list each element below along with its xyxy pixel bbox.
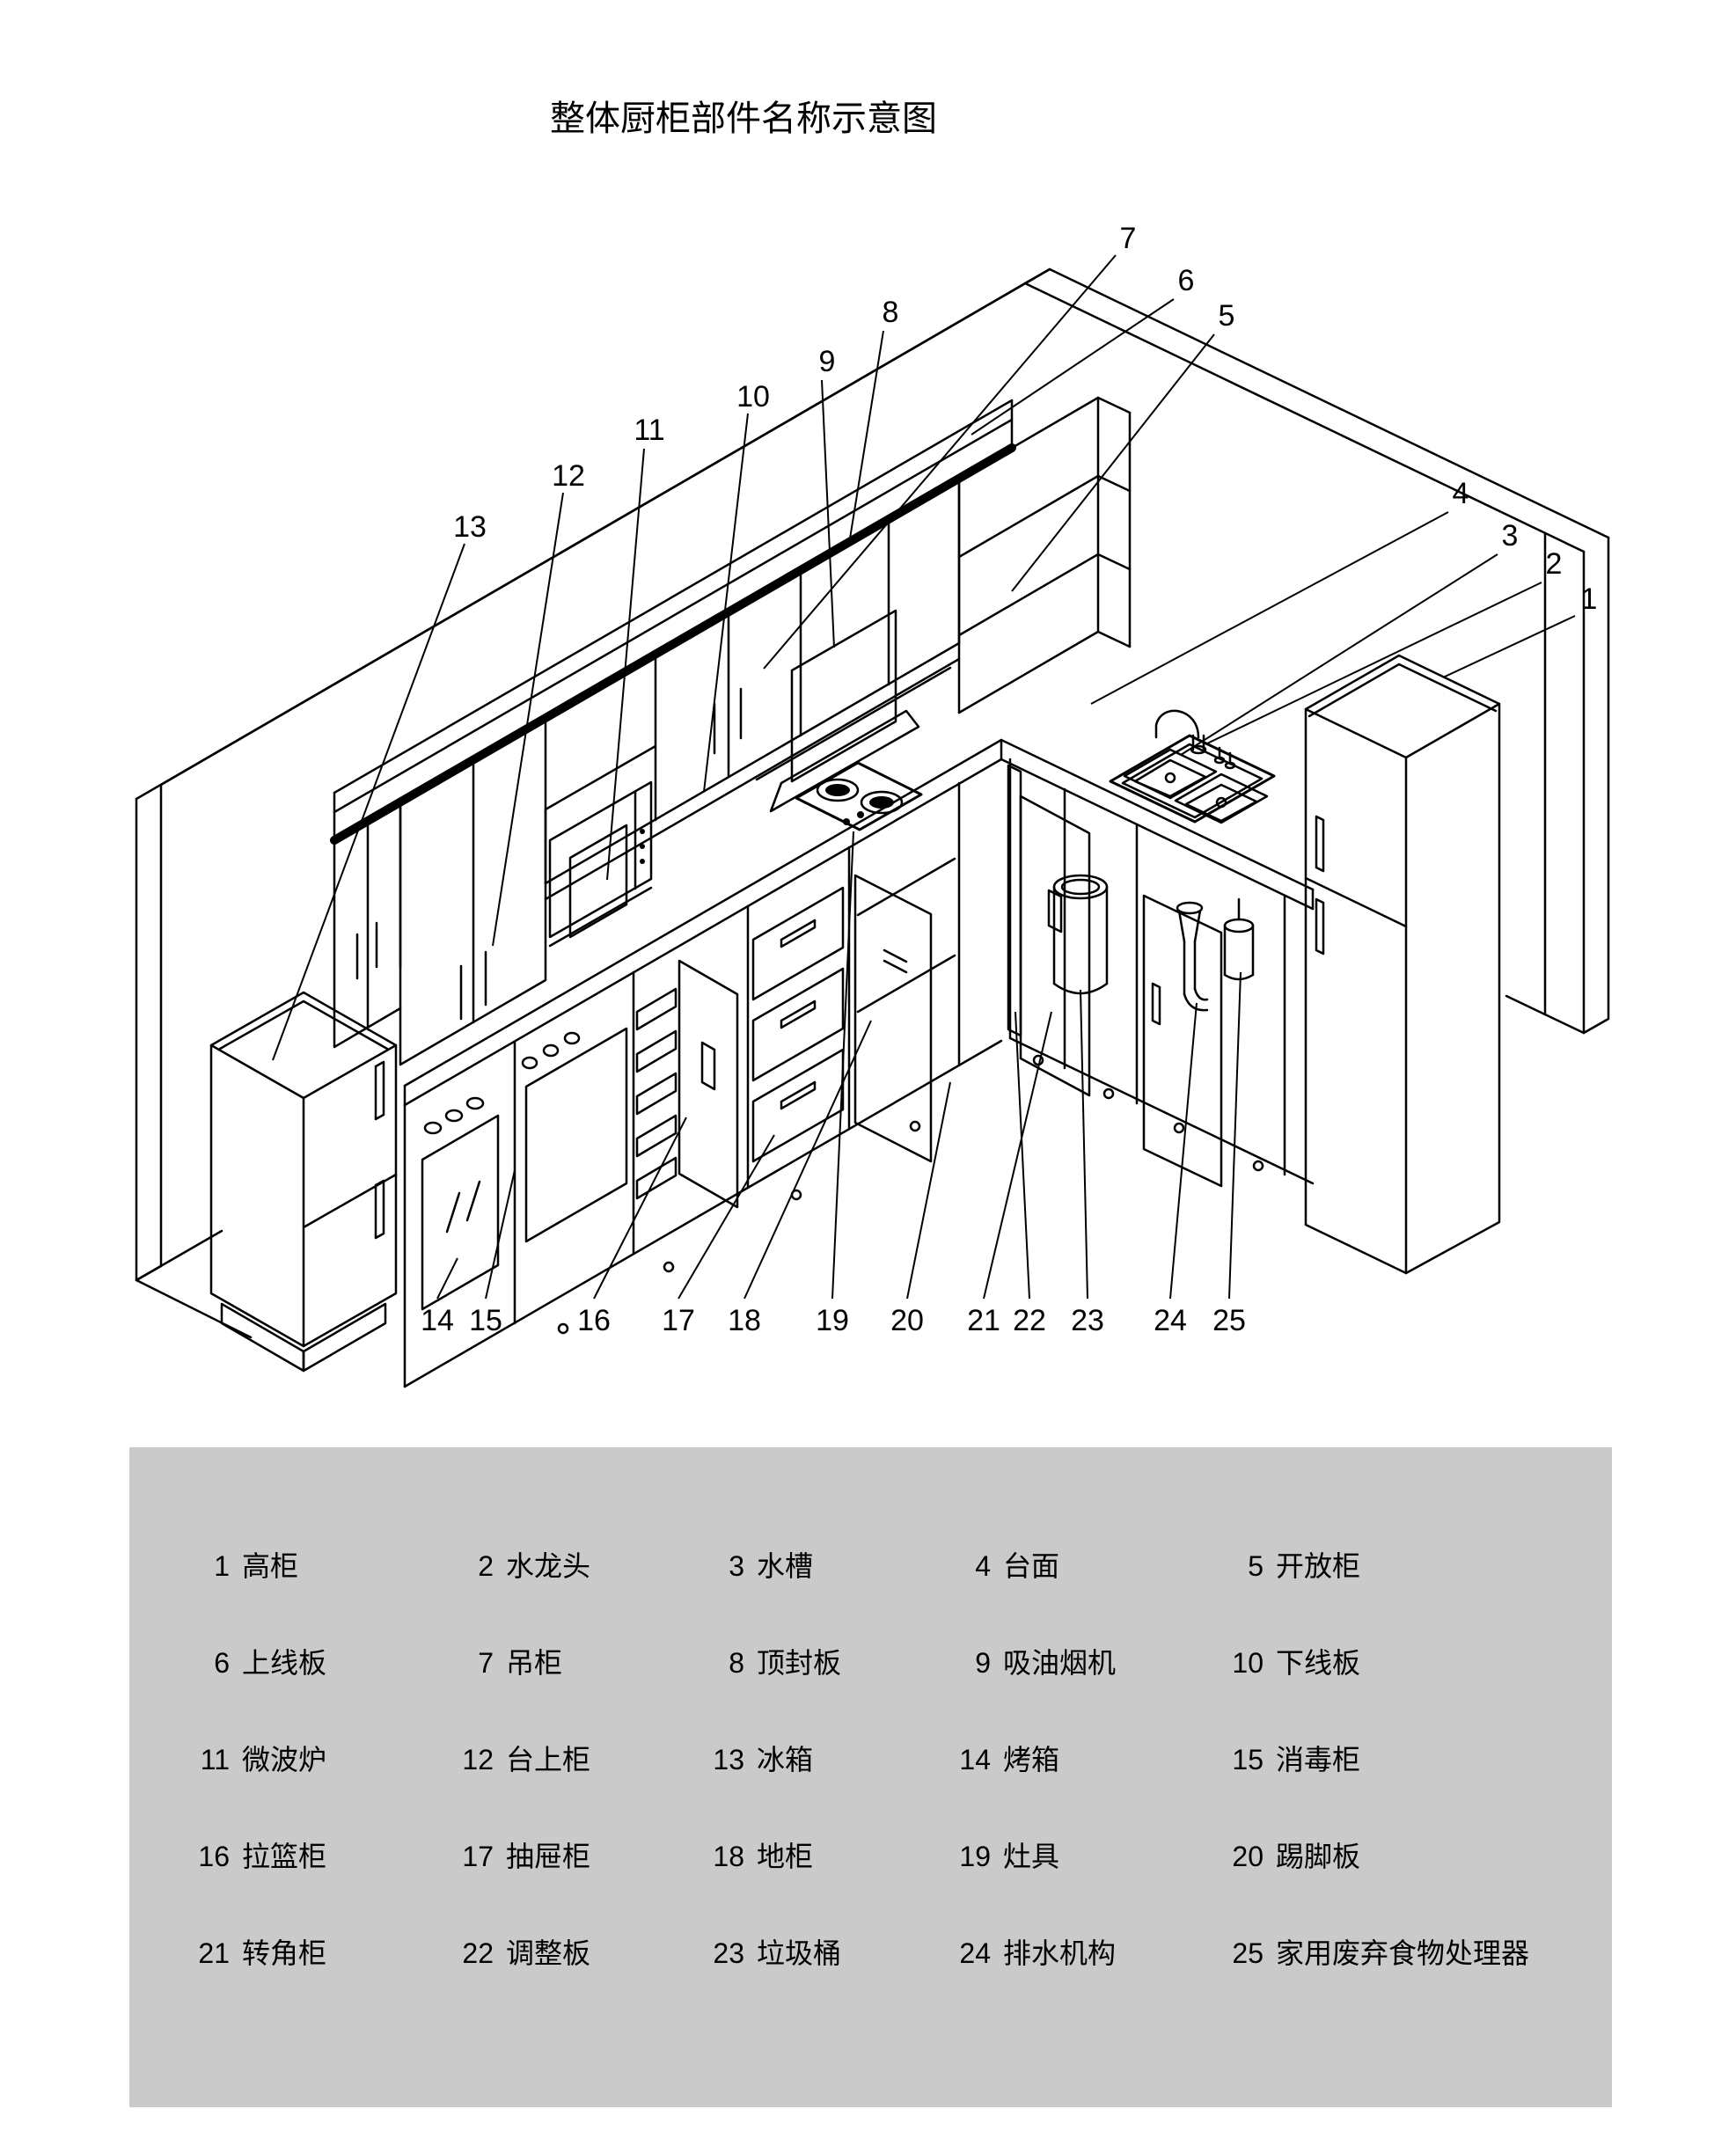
callout-24: 24	[1154, 1304, 1187, 1337]
legend-label: 上线板	[242, 1647, 326, 1679]
oven	[422, 1098, 498, 1309]
legend-label: 垃圾桶	[757, 1937, 841, 1969]
disinfection-cabinet	[523, 1029, 626, 1241]
legend-num: 1	[191, 1550, 230, 1582]
legend-label: 吊柜	[506, 1647, 562, 1679]
legend-item-12: 12台上柜	[455, 1744, 706, 1776]
legend-num: 6	[191, 1647, 230, 1679]
base-cabinets	[405, 783, 1001, 1387]
legend-item-20: 20踢脚板	[1225, 1841, 1603, 1872]
countertop	[405, 668, 1313, 1105]
legend-label: 开放柜	[1276, 1550, 1360, 1582]
legend-item-6: 6上线板	[191, 1647, 455, 1679]
legend-num: 25	[1225, 1937, 1264, 1969]
legend-num: 9	[952, 1647, 991, 1679]
callout-10: 10	[736, 380, 770, 414]
callout-7: 7	[1120, 222, 1137, 255]
legend-num: 19	[952, 1841, 991, 1872]
legend-label: 高柜	[242, 1550, 298, 1582]
callout-25: 25	[1212, 1304, 1246, 1337]
legend-item-24: 24排水机构	[952, 1937, 1225, 1969]
tall-cabinet	[1306, 655, 1499, 1273]
legend-num: 5	[1225, 1550, 1264, 1582]
legend-item-15: 15消毒柜	[1225, 1744, 1603, 1776]
legend-num: 18	[706, 1841, 744, 1872]
legend-label: 顶封板	[757, 1647, 841, 1679]
callout-1: 1	[1581, 582, 1598, 616]
legend-label: 灶具	[1003, 1841, 1059, 1872]
legend-label: 台上柜	[506, 1744, 590, 1776]
counter-top-cabinet	[400, 718, 546, 1065]
legend-label: 烤箱	[1003, 1744, 1059, 1776]
legend-num: 21	[191, 1937, 230, 1969]
callout-8: 8	[883, 296, 899, 329]
legend-item-18: 18地柜	[706, 1841, 952, 1872]
callout-3: 3	[1502, 519, 1519, 553]
callout-18: 18	[728, 1304, 761, 1337]
callout-5: 5	[1219, 299, 1235, 333]
legend-label: 下线板	[1276, 1647, 1360, 1679]
legend-label: 调整板	[506, 1937, 590, 1969]
page-title: 整体厨柜部件名称示意图	[550, 99, 937, 138]
legend-num: 10	[1225, 1647, 1264, 1679]
legend-item-2: 2水龙头	[455, 1550, 706, 1582]
kitchen-cabinet-diagram-page: 整体厨柜部件名称示意图	[0, 0, 1736, 2138]
callout-14: 14	[421, 1304, 454, 1337]
callout-4: 4	[1453, 477, 1469, 510]
legend-label: 抽屉柜	[506, 1841, 590, 1872]
fridge	[211, 992, 396, 1371]
legend-item-14: 14烤箱	[952, 1744, 1225, 1776]
callout-21: 21	[967, 1304, 1000, 1337]
legend-num: 3	[706, 1550, 744, 1582]
legend-item-4: 4台面	[952, 1550, 1225, 1582]
legend-num: 17	[455, 1841, 494, 1872]
legend-num: 12	[455, 1744, 494, 1776]
legend-label: 台面	[1003, 1550, 1059, 1582]
food-waste-disposer	[1225, 899, 1253, 979]
legend-num: 20	[1225, 1841, 1264, 1872]
legend-item-5: 5开放柜	[1225, 1550, 1603, 1582]
legend-item-22: 22调整板	[455, 1937, 706, 1969]
callout-13: 13	[453, 510, 487, 544]
callout-15: 15	[469, 1304, 502, 1337]
trash-bin	[1054, 875, 1107, 993]
legend-num: 23	[706, 1937, 744, 1969]
legend-item-10: 10下线板	[1225, 1647, 1603, 1679]
base-cabinets-right	[1010, 759, 1313, 1183]
legend-label: 冰箱	[757, 1744, 813, 1776]
legend-item-3: 3水槽	[706, 1550, 952, 1582]
legend-item-23: 23垃圾桶	[706, 1937, 952, 1969]
callout-16: 16	[577, 1304, 611, 1337]
callout-9: 9	[819, 345, 836, 378]
legend-label: 踢脚板	[1276, 1841, 1360, 1872]
legend-item-8: 8顶封板	[706, 1647, 952, 1679]
parts-legend: 1高柜 2水龙头 3水槽 4台面 5开放柜 6上线板 7吊柜 8顶封板 9吸油烟…	[129, 1447, 1612, 2107]
callout-6: 6	[1178, 264, 1195, 297]
callout-11: 11	[634, 414, 664, 447]
sink-cabinet-door	[1144, 896, 1221, 1186]
legend-label: 排水机构	[1003, 1937, 1116, 1969]
isometric-kitchen-drawing: 整体厨柜部件名称示意图	[0, 0, 1736, 1461]
legend-item-19: 19灶具	[952, 1841, 1225, 1872]
legend-item-25: 25家用废弃食物处理器	[1225, 1937, 1603, 1969]
open-shelf-cabinet	[959, 398, 1130, 713]
legend-num: 4	[952, 1550, 991, 1582]
legend-num: 8	[706, 1647, 744, 1679]
legend-item-9: 9吸油烟机	[952, 1647, 1225, 1679]
legend-item-13: 13冰箱	[706, 1744, 952, 1776]
legend-item-1: 1高柜	[191, 1550, 455, 1582]
legend-item-11: 11微波炉	[191, 1744, 455, 1776]
callout-2: 2	[1546, 547, 1563, 581]
leader-lines	[273, 255, 1575, 1299]
callout-17: 17	[662, 1304, 695, 1337]
legend-num: 7	[455, 1647, 494, 1679]
legend-label: 吸油烟机	[1003, 1647, 1116, 1679]
legend-num: 11	[191, 1744, 230, 1776]
legend-item-7: 7吊柜	[455, 1647, 706, 1679]
parts-legend-grid: 1高柜 2水龙头 3水槽 4台面 5开放柜 6上线板 7吊柜 8顶封板 9吸油烟…	[129, 1447, 1612, 2002]
legend-label: 水龙头	[506, 1550, 590, 1582]
basket-cabinet	[637, 961, 737, 1207]
legend-label: 家用废弃食物处理器	[1276, 1937, 1529, 1969]
legend-num: 24	[952, 1937, 991, 1969]
legend-num: 15	[1225, 1744, 1264, 1776]
legend-item-21: 21转角柜	[191, 1937, 455, 1969]
legend-label: 水槽	[757, 1550, 813, 1582]
drawer-cabinet	[753, 888, 843, 1161]
legend-num: 2	[455, 1550, 494, 1582]
callout-22: 22	[1013, 1304, 1046, 1337]
microwave	[550, 782, 651, 946]
callout-20: 20	[890, 1304, 924, 1337]
legend-item-17: 17抽屉柜	[455, 1841, 706, 1872]
legend-label: 消毒柜	[1276, 1744, 1360, 1776]
legend-num: 14	[952, 1744, 991, 1776]
legend-label: 地柜	[757, 1841, 813, 1872]
legend-item-16: 16拉篮柜	[191, 1841, 455, 1872]
callout-23: 23	[1071, 1304, 1104, 1337]
callout-12: 12	[552, 459, 585, 493]
legend-label: 转角柜	[242, 1937, 326, 1969]
legend-label: 拉篮柜	[242, 1841, 326, 1872]
legend-label: 微波炉	[242, 1744, 326, 1776]
legend-num: 16	[191, 1841, 230, 1872]
legend-num: 22	[455, 1937, 494, 1969]
legend-num: 13	[706, 1744, 744, 1776]
wall-cabinets	[334, 479, 959, 1047]
callout-19: 19	[816, 1304, 849, 1337]
